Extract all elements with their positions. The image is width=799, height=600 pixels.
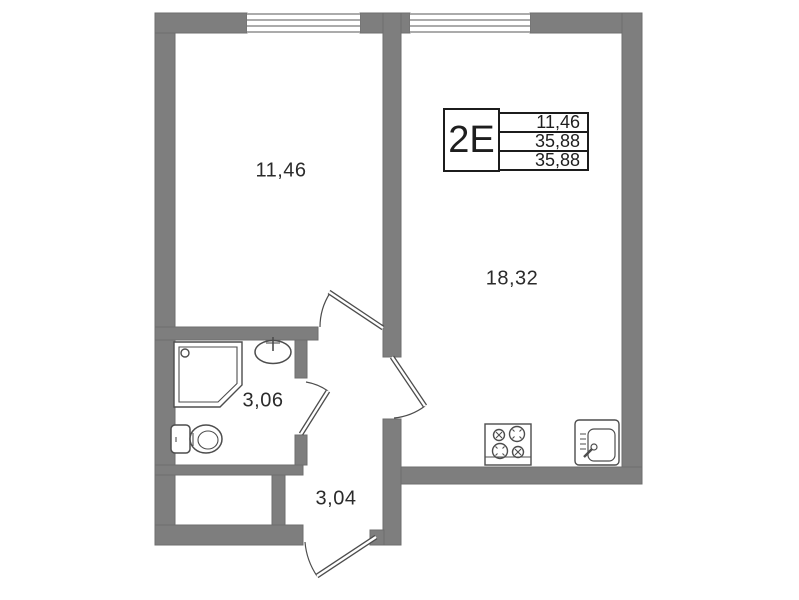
floor-plan: 11,46 18,32 3,06 3,04 2Е 11,46 35,88 35,… [0, 0, 799, 600]
window-kitchen [410, 13, 530, 33]
wall-outer-right [622, 13, 642, 484]
wall-closet-right [272, 475, 285, 525]
wall-outer-top-a [155, 13, 247, 33]
kitchen-sink-icon [575, 420, 619, 465]
wall-middle-lower [383, 419, 401, 545]
toilet-icon [171, 425, 222, 453]
wall-middle-upper [383, 13, 401, 357]
door-bathroom [301, 382, 328, 434]
wall-bath-right-upper [295, 340, 307, 378]
door-kitchen [392, 357, 425, 418]
shower-icon [174, 342, 242, 407]
wall-outer-bottom-left [155, 525, 303, 545]
room-label-bathroom: 3,06 [243, 390, 284, 413]
apartment-type-label: 2Е [443, 108, 500, 172]
room-label-living-room: 11,46 [255, 160, 306, 183]
wall-kitchen-bottom [383, 467, 642, 484]
room-label-kitchen-living: 18,32 [486, 268, 539, 291]
stove-icon [485, 424, 531, 465]
area-row-total: 35,88 [498, 131, 589, 152]
door-entry [305, 537, 376, 576]
walls [155, 13, 642, 545]
room-label-hallway: 3,04 [316, 488, 357, 511]
apartment-area-rows: 11,46 35,88 35,88 [498, 112, 589, 171]
wall-closet-top [155, 465, 303, 475]
area-row-living: 11,46 [498, 112, 589, 133]
floor-plan-drawing [0, 0, 799, 600]
wall-bath-right-lower [295, 435, 307, 465]
apartment-info-table: 2Е 11,46 35,88 35,88 [443, 108, 589, 172]
washbasin-icon [255, 337, 291, 364]
wall-living-bottom [155, 327, 318, 340]
door-living-room [320, 292, 383, 328]
area-row-overall: 35,88 [498, 150, 589, 171]
window-living-room [247, 13, 360, 33]
